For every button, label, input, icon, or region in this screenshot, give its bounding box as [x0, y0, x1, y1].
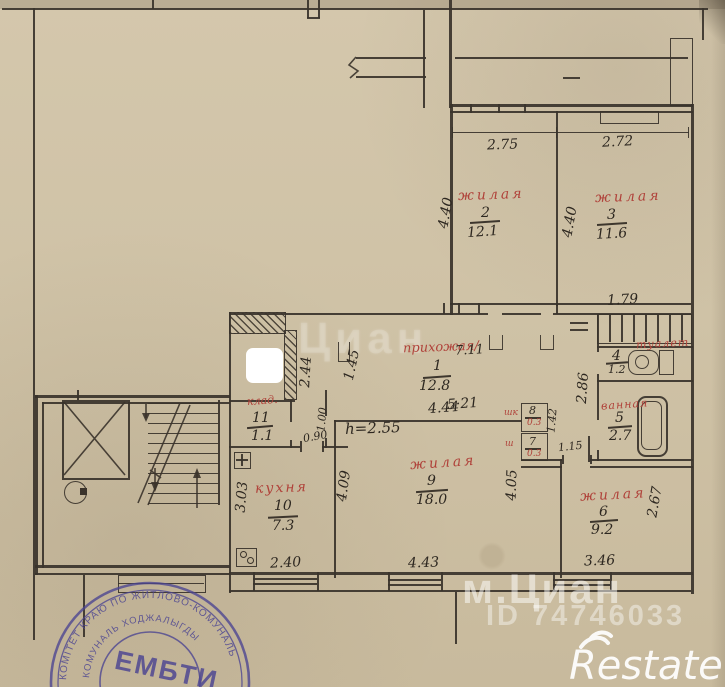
restate-logo-text: Restate [569, 643, 723, 687]
dim-room3-width: 2.72 [602, 133, 634, 151]
room2-number: 2 [481, 205, 490, 221]
dim-wc-side: 2.86 [573, 365, 592, 410]
dim-room9-right: 4.05 [503, 463, 521, 508]
dim-kitchen-240: 2.40 [270, 554, 302, 572]
closet7-area: 0.3 [527, 449, 541, 459]
ceiling-height-note: h=2.55 [345, 418, 401, 438]
room3-area: 11.6 [596, 225, 628, 243]
stamp-center-text: ЕМБТИ [112, 645, 221, 687]
bti-stamp: КОМІТЕТ КРАЮ ПО ЖИТЛОВО-КОМУНАЛЬ КОМУНАЛ… [40, 570, 270, 687]
pantry-number: 11 [252, 410, 270, 426]
room6-number: 6 [599, 504, 608, 520]
pantry-area: 1.1 [251, 428, 273, 444]
hall-area: 12.8 [419, 378, 450, 394]
closet8-number: 8 [529, 404, 536, 417]
watermark-photo-id: ID 74746033 [486, 600, 685, 633]
wc-area: 1.2 [608, 363, 626, 376]
room9-number: 9 [427, 473, 436, 489]
dim-room9-top: 4.44 [427, 399, 459, 417]
kitchen-label: кухня [255, 479, 308, 497]
dim-loggia: 1.79 [607, 291, 639, 309]
room9-area: 18.0 [416, 492, 447, 508]
room3-number: 3 [607, 207, 616, 223]
pantry-label: клад. [247, 393, 278, 408]
closet7-number: 7 [529, 435, 536, 448]
kitchen-number: 10 [274, 498, 292, 514]
bath-area: 2.7 [609, 428, 631, 444]
bath-number: 5 [615, 410, 624, 426]
wc-label: туалет [636, 336, 690, 352]
hall-red-area: 7.11 [455, 342, 485, 358]
closet7-label: ш [505, 439, 514, 449]
closet8-area: 0.3 [527, 418, 541, 428]
restate-logo: Restate [545, 630, 725, 687]
closet8-label: шк [504, 408, 518, 418]
room2-label: жилая [458, 186, 525, 204]
dim-room2-width: 2.75 [487, 136, 519, 153]
room6-area: 9.2 [591, 522, 613, 538]
dim-pass-115: 1.15 [557, 439, 583, 454]
hall-number: 1 [433, 358, 442, 374]
room2-area: 12.1 [466, 223, 498, 241]
floor-plan-scan: Циан [0, 0, 725, 687]
dim-room9-bottom: 4.43 [408, 554, 440, 571]
room3-label: жилая [595, 188, 662, 206]
dim-hall-244: 2.44 [297, 350, 315, 395]
kitchen-area: 7.3 [272, 518, 294, 534]
